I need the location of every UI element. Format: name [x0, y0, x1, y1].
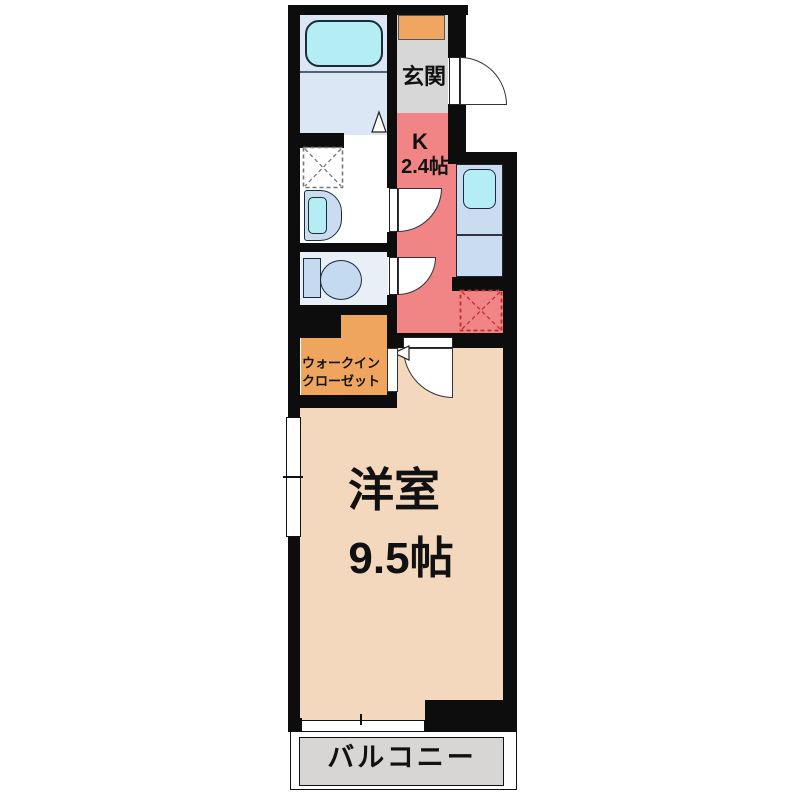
wall-closet-bottom	[288, 395, 397, 408]
kitchen-name-label: K	[412, 131, 428, 153]
wall-closet-notch	[288, 315, 341, 338]
bathroom-divider-line	[300, 71, 388, 73]
closet-opening	[387, 348, 398, 392]
kitchen-sink	[463, 169, 496, 209]
washbasin-bowl	[308, 197, 327, 234]
toilet-tank	[303, 258, 321, 298]
wall-between-doors	[387, 232, 397, 257]
bathroom-door-opening	[344, 135, 387, 148]
toilet-door-leaf	[389, 257, 398, 295]
refrigerator-space-icon	[459, 289, 503, 332]
entrance-door-leaf	[449, 57, 460, 105]
washroom-door-leaf	[389, 188, 398, 232]
balcony-label: バルコニー	[327, 745, 476, 772]
kitchen-size-label: 2.4帖	[401, 157, 449, 177]
main-room-door-leaf	[403, 337, 453, 348]
wall-bottom-right-block	[425, 700, 517, 732]
window-left-tick	[283, 476, 303, 478]
entrance-label: 玄関	[402, 66, 446, 88]
shoe-cabinet	[398, 15, 445, 40]
wall-bottom-left-corner	[288, 718, 302, 732]
wall-entrance-right-mid	[448, 104, 466, 153]
entrance-door-arc	[460, 57, 507, 105]
wall-counter-top	[448, 152, 517, 164]
wall-toilet-closet	[288, 305, 388, 315]
wall-entrance-right-top	[448, 5, 466, 58]
washing-machine-pan-icon	[302, 146, 344, 189]
sliding-window-tick	[360, 714, 362, 725]
floor-plan: 玄関 K 2.4帖 ウォークイン クローゼット 洋室 9.5帖 バルコニー	[0, 0, 800, 800]
toilet-bowl	[320, 260, 362, 300]
closet-label-line2: クローゼット	[302, 375, 380, 388]
main-room-name-label: 洋室	[348, 467, 440, 513]
main-room-size-label: 9.5帖	[348, 537, 453, 581]
wall-right-main	[503, 164, 517, 732]
wall-washroom-toilet	[288, 243, 388, 252]
wall-left-upper	[288, 5, 300, 408]
bathtub	[305, 20, 383, 67]
bathroom-door-marker-icon	[370, 110, 388, 134]
kitchen-counter-divider	[456, 234, 503, 236]
closet-label-line1: ウォークイン	[302, 357, 380, 370]
wall-bath-right	[387, 5, 397, 188]
sliding-window	[301, 720, 425, 732]
wall-top	[288, 5, 468, 15]
